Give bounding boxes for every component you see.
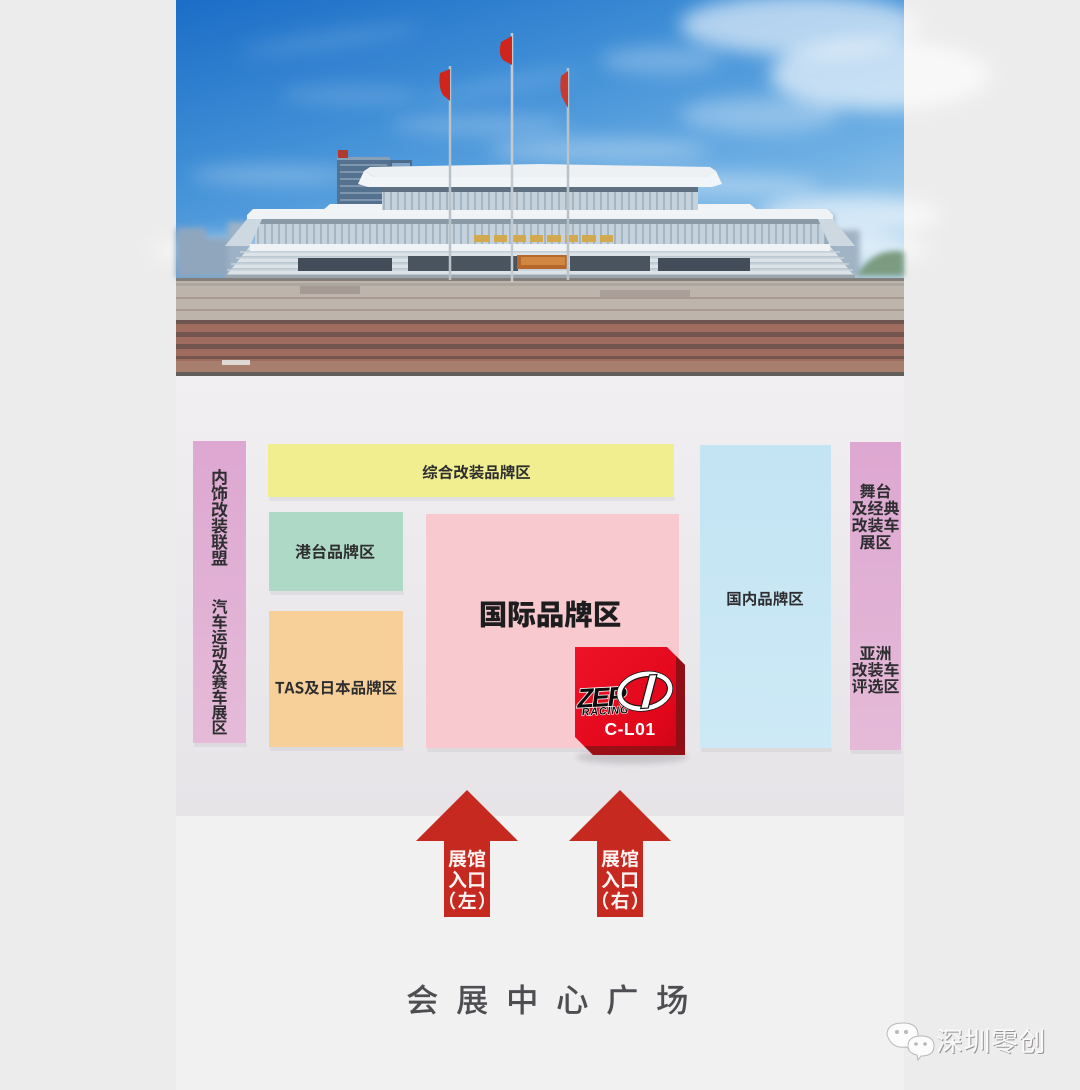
svg-text:C-L01: C-L01	[604, 719, 655, 739]
svg-text:RACING: RACING	[582, 704, 630, 718]
